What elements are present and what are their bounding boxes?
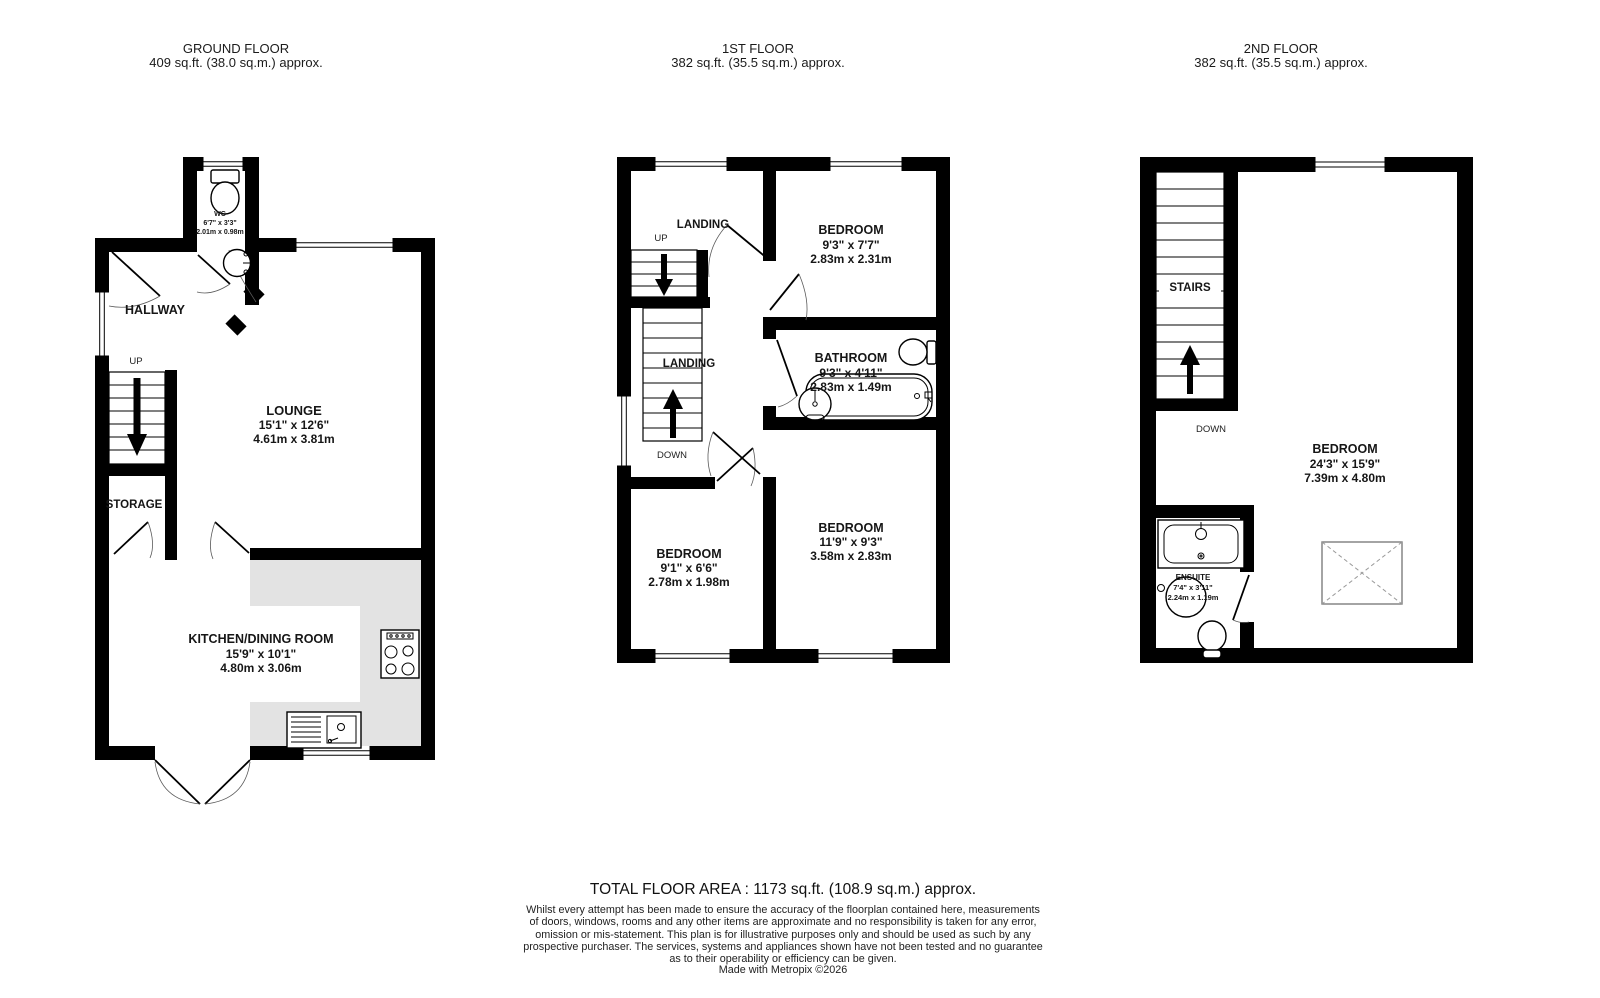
second-floor-plan: STAIRS DOWN ENSUITE 7'4" x 3'11" 2.24m x… — [1135, 150, 1480, 675]
front-door — [109, 252, 160, 307]
window — [830, 157, 902, 171]
vanity-sink-icon — [1158, 520, 1244, 568]
room-dims-imperial: 15'9" x 10'1" — [226, 647, 296, 661]
room-label: BATHROOM — [815, 351, 888, 365]
stairs-upper — [631, 250, 697, 297]
bedroom1-door — [770, 274, 807, 320]
bedroom-label-group: BEDROOM 24'3" x 15'9" 7.39m x 4.80m — [1304, 442, 1385, 485]
wc-label-group: WC 6'7" x 3'3" 2.01m x 0.98m — [196, 211, 243, 236]
bathroom-label-group: BATHROOM 9'3" x 4'11" 2.83m x 1.49m — [810, 351, 891, 394]
room-dims-metric: 4.61m x 3.81m — [253, 432, 334, 446]
down-label: DOWN — [1196, 424, 1226, 435]
metropix-credit: Made with Metropix ©2026 — [0, 964, 1566, 976]
window — [1315, 157, 1385, 172]
floor-title: GROUND FLOOR — [36, 42, 436, 56]
windows — [1315, 157, 1385, 172]
room-dims-imperial: 11'9" x 9'3" — [819, 535, 882, 549]
window — [655, 649, 730, 663]
stairs-lower — [643, 308, 702, 441]
room-label: LOUNGE — [266, 403, 322, 418]
room-dims-imperial: 7'4" x 3'11" — [1173, 583, 1213, 592]
down-label: DOWN — [657, 450, 687, 461]
disclaimer-line: prospective purchaser. The services, sys… — [0, 941, 1566, 953]
room-label: BEDROOM — [818, 223, 883, 237]
landing-door — [709, 225, 768, 277]
window — [296, 238, 393, 252]
room-label: HALLWAY — [125, 303, 186, 317]
room-dims-metric: 2.24m x 1.19m — [1168, 593, 1219, 602]
ensuite-door — [1233, 575, 1249, 623]
up-label: UP — [654, 233, 667, 244]
bedroom3-door — [708, 432, 760, 476]
room-dims-imperial: 24'3" x 15'9" — [1310, 457, 1380, 471]
ensuite-label-group: ENSUITE 7'4" x 3'11" 2.24m x 1.19m — [1168, 573, 1219, 602]
window — [203, 157, 243, 171]
room-dims-imperial: 15'1" x 12'6" — [259, 418, 329, 432]
room-dims-imperial: 6'7" x 3'3" — [203, 220, 236, 227]
room-label: LANDING — [677, 219, 729, 231]
ground-floor-plan: WC 6'7" x 3'3" 2.01m x 0.98m HALLWAY UP … — [85, 150, 445, 815]
room-label: STORAGE — [106, 499, 163, 511]
total-floor-area: TOTAL FLOOR AREA : 1173 sq.ft. (108.9 sq… — [0, 881, 1566, 899]
window — [818, 649, 893, 663]
kitchen-sink-icon — [287, 712, 361, 748]
doors — [708, 225, 807, 486]
room-label: STAIRS — [1169, 282, 1211, 294]
stairs: STAIRS — [1156, 172, 1224, 399]
floor-area: 382 sq.ft. (35.5 sq.m.) approx. — [558, 56, 958, 70]
room-label: ENSUITE — [1176, 573, 1211, 582]
room-dims-metric: 3.58m x 2.83m — [810, 549, 891, 563]
window — [655, 157, 727, 171]
floor-area: 409 sq.ft. (38.0 sq.m.) approx. — [36, 56, 436, 70]
toilet-icon — [211, 170, 239, 214]
kitchen-label-group: KITCHEN/DINING ROOM 15'9" x 10'1" 4.80m … — [188, 632, 333, 675]
doors — [109, 250, 256, 804]
room-label: BEDROOM — [1312, 442, 1377, 456]
floor-title: 2ND FLOOR — [1081, 42, 1481, 56]
window — [617, 396, 631, 466]
hob-icon — [381, 630, 419, 678]
bedroom3-label-group: BEDROOM 11'9" x 9'3" 3.58m x 2.83m — [810, 521, 891, 563]
patio-double-door — [155, 760, 250, 804]
room-dims-metric: 2.78m x 1.98m — [648, 575, 729, 589]
room-label: BEDROOM — [656, 547, 721, 561]
ground-floor-header: GROUND FLOOR 409 sq.ft. (38.0 sq.m.) app… — [36, 42, 436, 70]
second-floor-header: 2ND FLOOR 382 sq.ft. (35.5 sq.m.) approx… — [1081, 42, 1481, 70]
up-label: UP — [129, 356, 142, 367]
room-label: LANDING — [663, 358, 715, 370]
toilet-icon — [899, 339, 936, 365]
bedroom1-label-group: BEDROOM 9'3" x 7'7" 2.83m x 2.31m — [810, 223, 891, 266]
floor-title: 1ST FLOOR — [558, 42, 958, 56]
stairs — [109, 372, 165, 464]
disclaimer-line: omission or mis-statement. This plan is … — [0, 929, 1566, 941]
room-dims-metric: 7.39m x 4.80m — [1304, 471, 1385, 485]
room-dims-imperial: 9'3" x 4'11" — [819, 366, 882, 380]
room-label: KITCHEN/DINING ROOM — [188, 632, 333, 646]
window — [95, 292, 109, 356]
room-label: WC — [214, 211, 226, 218]
first-floor-header: 1ST FLOOR 382 sq.ft. (35.5 sq.m.) approx… — [558, 42, 958, 70]
lounge-label-group: LOUNGE 15'1" x 12'6" 4.61m x 3.81m — [253, 403, 334, 446]
room-dims-metric: 4.80m x 3.06m — [220, 661, 301, 675]
skylight — [1322, 542, 1402, 604]
sink-icon — [224, 250, 253, 277]
bedroom2-label-group: BEDROOM 9'1" x 6'6" 2.78m x 1.98m — [648, 547, 729, 589]
room-dims-metric: 2.83m x 2.31m — [810, 252, 891, 266]
room-dims-metric: 2.01m x 0.98m — [196, 229, 243, 236]
disclaimer: Whilst every attempt has been made to en… — [0, 904, 1566, 965]
bathroom-door — [777, 340, 797, 407]
disclaimer-line: Whilst every attempt has been made to en… — [0, 904, 1566, 916]
room-dims-metric: 2.83m x 1.49m — [810, 380, 891, 394]
storage-door — [114, 522, 153, 558]
disclaimer-line: of doors, windows, rooms and any other i… — [0, 916, 1566, 928]
floor-area: 382 sq.ft. (35.5 sq.m.) approx. — [1081, 56, 1481, 70]
room-label: BEDROOM — [818, 521, 883, 535]
kitchen-door — [210, 522, 249, 559]
room-dims-imperial: 9'1" x 6'6" — [660, 561, 717, 575]
first-floor-plan: LANDING UP BEDROOM 9'3" x 7'7" 2.83m x 2… — [610, 150, 960, 675]
room-dims-imperial: 9'3" x 7'7" — [822, 238, 879, 252]
